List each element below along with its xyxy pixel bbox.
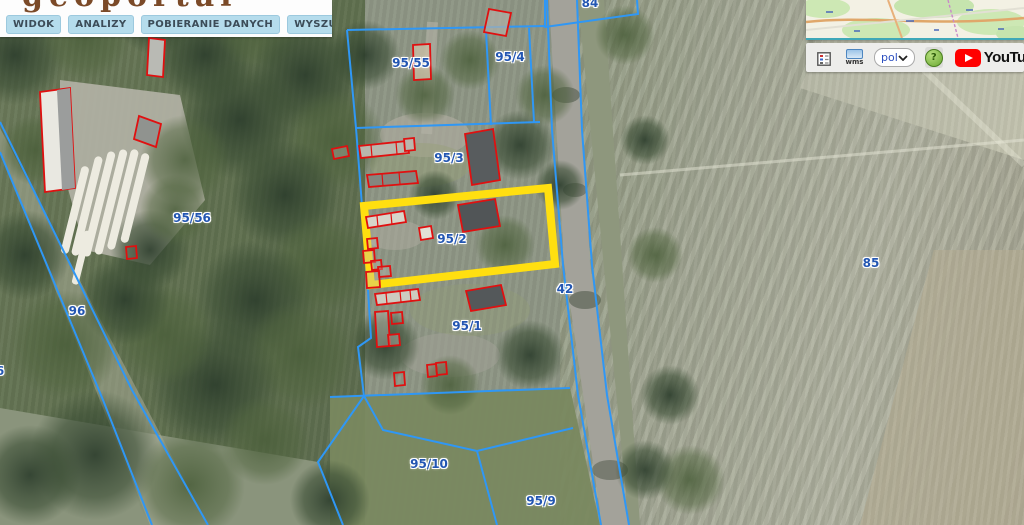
menu-item-pobieranie-danych[interactable]: POBIERANIE DANYCH <box>141 15 281 34</box>
language-select[interactable]: pol <box>874 48 915 67</box>
wms-label: wms <box>846 59 864 66</box>
header-panel: geoportal WIDOK ANALIZY POBIERANIE DANYC… <box>0 0 332 37</box>
terrain-layer <box>0 0 1024 525</box>
overview-minimap[interactable] <box>806 0 1024 40</box>
wms-icon[interactable]: wms <box>846 49 863 66</box>
legend-grid-icon[interactable] <box>817 51 831 65</box>
chevron-down-icon <box>898 55 908 61</box>
language-value: pol <box>881 51 898 64</box>
help-button[interactable]: ? <box>925 47 943 68</box>
minimap-graphic <box>806 0 1024 38</box>
map-toolbar: wms pol ? YouTube <box>806 43 1024 72</box>
menu-item-analizy[interactable]: ANALIZY <box>68 15 133 34</box>
logo-geoportal: geoportal <box>22 0 238 14</box>
menu-item-wyszukiwania[interactable]: WYSZUKIWANIA <box>287 15 332 34</box>
youtube-play-icon <box>955 49 981 67</box>
map-viewport[interactable]: 8495/5595/495/395/5695/242968595/1695/10… <box>0 0 1024 525</box>
youtube-button[interactable]: YouTube <box>955 49 1024 67</box>
main-menu: WIDOK ANALIZY POBIERANIE DANYCH WYSZUKIW… <box>6 15 332 34</box>
help-question-icon: ? <box>925 49 943 67</box>
youtube-label: YouTube <box>984 49 1024 66</box>
map-overlay <box>0 0 1024 525</box>
menu-item-widok[interactable]: WIDOK <box>6 15 61 34</box>
